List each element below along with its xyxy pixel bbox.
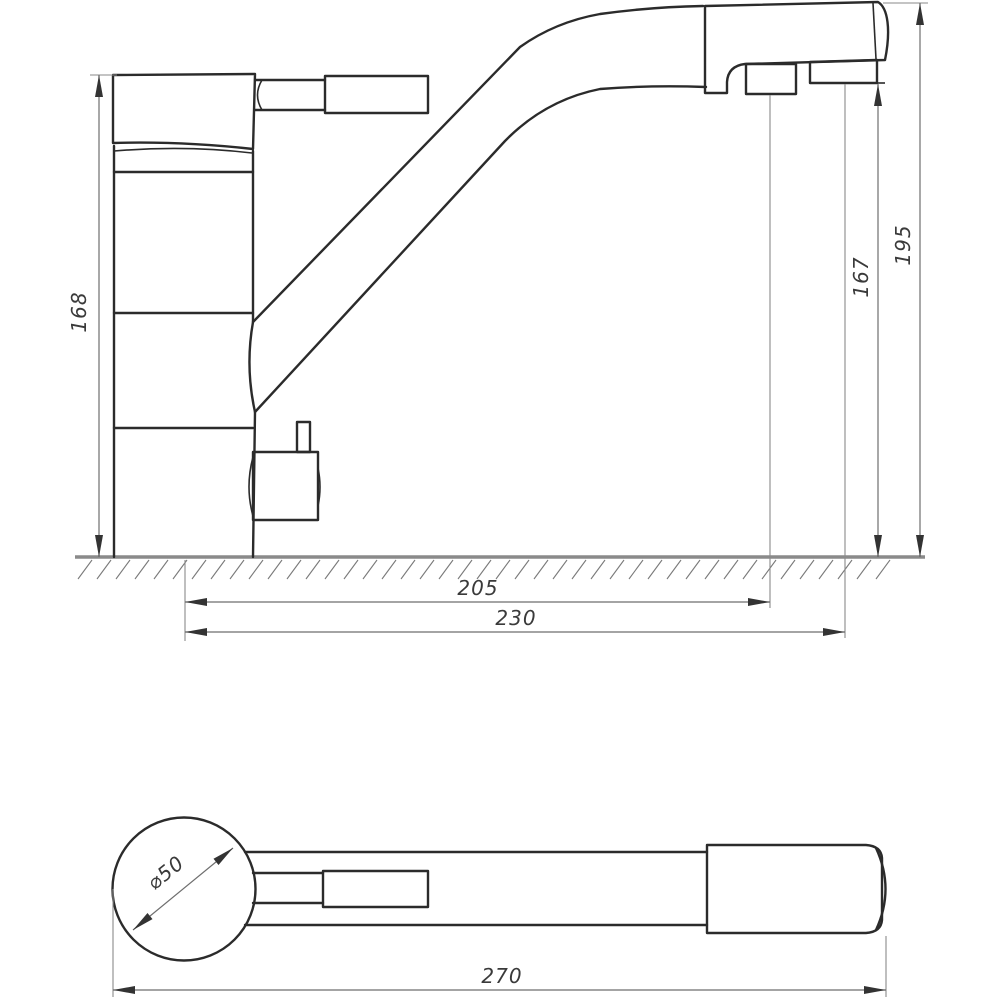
dim-label-outlet-height: 167: [849, 256, 873, 297]
filtered-water-outlet: [810, 60, 877, 83]
valve-box: [253, 452, 318, 520]
dim-230-arrow-right: [823, 628, 845, 636]
dim-168-arrow-top: [95, 75, 103, 97]
handle-plan-grip: [323, 871, 428, 907]
side-view-dimensions: 168 195 167 205 230: [67, 3, 928, 641]
dim-label-total-height: 195: [891, 224, 915, 265]
dim-label-body-height: 168: [67, 291, 91, 332]
spout-head-end-line: [873, 3, 876, 59]
handle-grip: [325, 76, 428, 113]
dim-270-arrow-left: [113, 986, 135, 994]
spout-plan-edges: [245, 852, 707, 925]
handle-neck: [255, 80, 325, 110]
dim-diameter-arrow-right: [214, 848, 234, 865]
valve-stem: [297, 422, 310, 452]
cap-joint-line: [114, 148, 252, 153]
top-view: ⌀50 270: [113, 818, 887, 998]
dim-label-outlet-reach: 230: [495, 606, 536, 630]
body-cap: [113, 74, 255, 149]
dim-label-total-length: 270: [481, 964, 522, 988]
drawing-svg: 168 195 167 205 230: [0, 0, 1000, 1000]
top-view-dimensions: ⌀50 270: [113, 848, 886, 997]
dim-205-arrow-right: [748, 598, 770, 606]
base-circle: [113, 818, 256, 961]
dim-label-base-diameter: ⌀50: [142, 850, 189, 894]
faucet-plan-outline: [113, 818, 886, 961]
dim-label-aerator-reach: 205: [457, 576, 498, 600]
side-view: 168 195 167 205 230: [67, 2, 928, 641]
faucet-technical-drawing: 168 195 167 205 230: [0, 0, 1000, 1000]
aerator-outlet: [746, 64, 796, 94]
head-plan-end-cap: [876, 848, 886, 930]
dim-230-arrow-left: [185, 628, 207, 636]
dim-270-arrow-right: [864, 986, 886, 994]
handle-neck-fillet: [258, 80, 263, 110]
head-plan-outline: [707, 845, 882, 933]
dim-167-arrow-top: [874, 84, 882, 106]
dim-195-arrow-top: [916, 3, 924, 25]
spout-outline: [253, 6, 706, 412]
faucet-body-outline: [113, 74, 428, 557]
dim-168-arrow-bottom: [95, 535, 103, 557]
dim-205-arrow-left: [185, 598, 207, 606]
dim-195-arrow-bottom: [916, 535, 924, 557]
dim-diameter-arrow-left: [133, 913, 153, 930]
spout-upper-edge: [253, 6, 703, 322]
dim-167-arrow-bottom: [874, 535, 882, 557]
spout-head: [705, 2, 888, 94]
handle-plan-neck: [253, 873, 323, 903]
